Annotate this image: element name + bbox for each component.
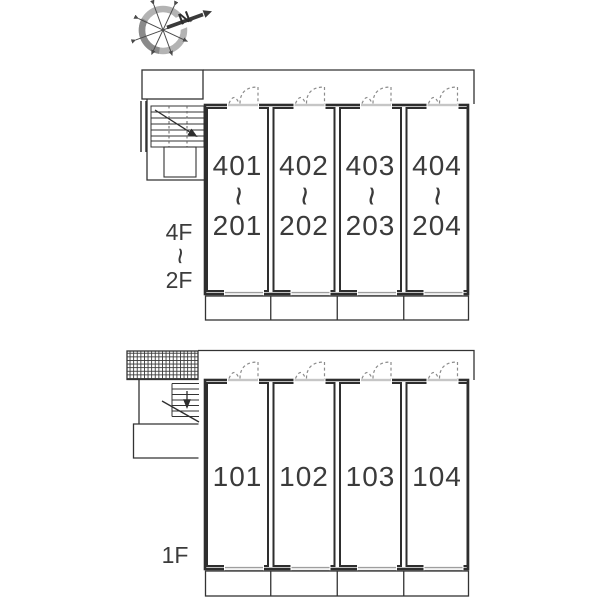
range-tilde: ~	[222, 186, 252, 206]
stair-treads	[151, 112, 204, 141]
first-floor-label: 1F	[152, 543, 198, 567]
door-swing-icon	[294, 87, 326, 110]
upper-balcony	[206, 296, 469, 320]
stair-landing	[164, 147, 196, 177]
unit-number: 204	[412, 211, 462, 241]
window-icon	[224, 565, 264, 573]
unit-number: 104	[412, 462, 462, 492]
unit-label-401-201: 401 ~ 201	[207, 148, 268, 244]
unit-number: 404	[412, 151, 462, 181]
door-swing-icon	[227, 362, 259, 385]
first-balcony	[206, 571, 469, 596]
first-staircase	[162, 384, 199, 423]
compass-rose: N	[136, 5, 212, 56]
window-icon	[424, 565, 464, 573]
range-tilde: ~	[289, 186, 319, 206]
window-icon	[224, 290, 264, 298]
window-icon	[424, 290, 464, 298]
floorplan-page: N	[0, 0, 600, 600]
door-swing-icon	[227, 87, 259, 110]
unit-number: 203	[346, 211, 396, 241]
window-icon	[357, 565, 397, 573]
upper-floor-range-label: 4F ~ 2F	[156, 220, 202, 292]
unit-label-103: 103	[340, 440, 401, 514]
range-tilde: ~	[167, 248, 191, 265]
upper-staircase	[151, 106, 204, 177]
unit-label-104: 104	[407, 440, 468, 514]
window-icon	[291, 290, 331, 298]
entrance-porch-hatched	[127, 351, 198, 380]
unit-number: 102	[279, 462, 329, 492]
unit-number: 403	[346, 151, 396, 181]
unit-label-403-203: 403 ~ 203	[340, 148, 401, 244]
unit-number: 103	[346, 462, 396, 492]
stair-direction-arrow	[155, 110, 196, 136]
unit-number: 401	[213, 151, 263, 181]
unit-number: 202	[279, 211, 329, 241]
door-swing-icon	[427, 362, 459, 385]
unit-label-402-202: 402 ~ 202	[274, 148, 335, 244]
unit-label-404-204: 404 ~ 204	[407, 148, 468, 244]
unit-label-101: 101	[207, 440, 268, 514]
window-icon	[357, 290, 397, 298]
unit-number: 402	[279, 151, 329, 181]
door-swing-icon	[360, 87, 392, 110]
floor-label: 2F	[166, 268, 193, 292]
floor-label: 4F	[166, 220, 193, 244]
door-swing-icon	[427, 87, 459, 110]
unit-label-102: 102	[274, 440, 335, 514]
stair-treads	[172, 384, 199, 417]
door-swing-icon	[360, 362, 392, 385]
unit-number: 201	[213, 211, 263, 241]
door-swing-icon	[294, 362, 326, 385]
floor-label: 1F	[162, 543, 189, 567]
window-icon	[291, 565, 331, 573]
unit-number: 101	[213, 462, 263, 492]
range-tilde: ~	[422, 186, 452, 206]
range-tilde: ~	[355, 186, 385, 206]
